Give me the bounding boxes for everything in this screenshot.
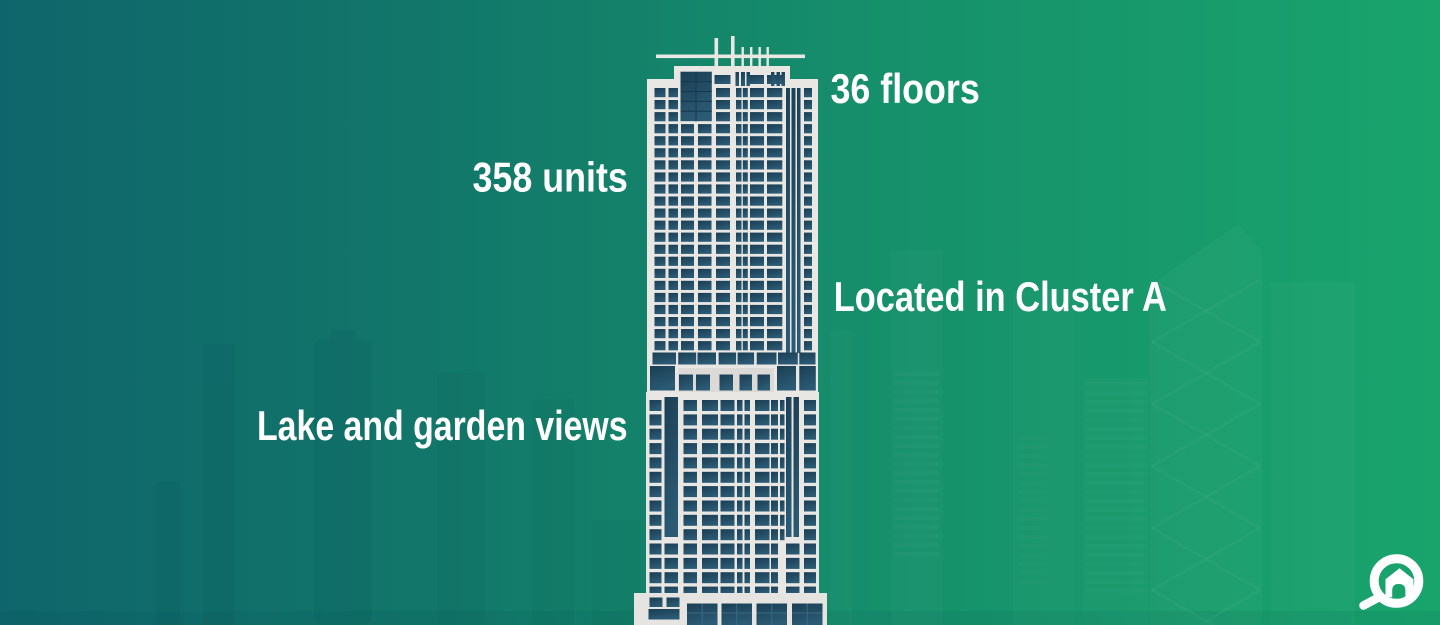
svg-text:Lake and garden views: Lake and garden views <box>257 402 628 449</box>
svg-text:Located in Cluster A: Located in Cluster A <box>834 273 1167 320</box>
svg-text:36 floors: 36 floors <box>831 65 980 112</box>
svg-text:358 units: 358 units <box>473 153 628 200</box>
